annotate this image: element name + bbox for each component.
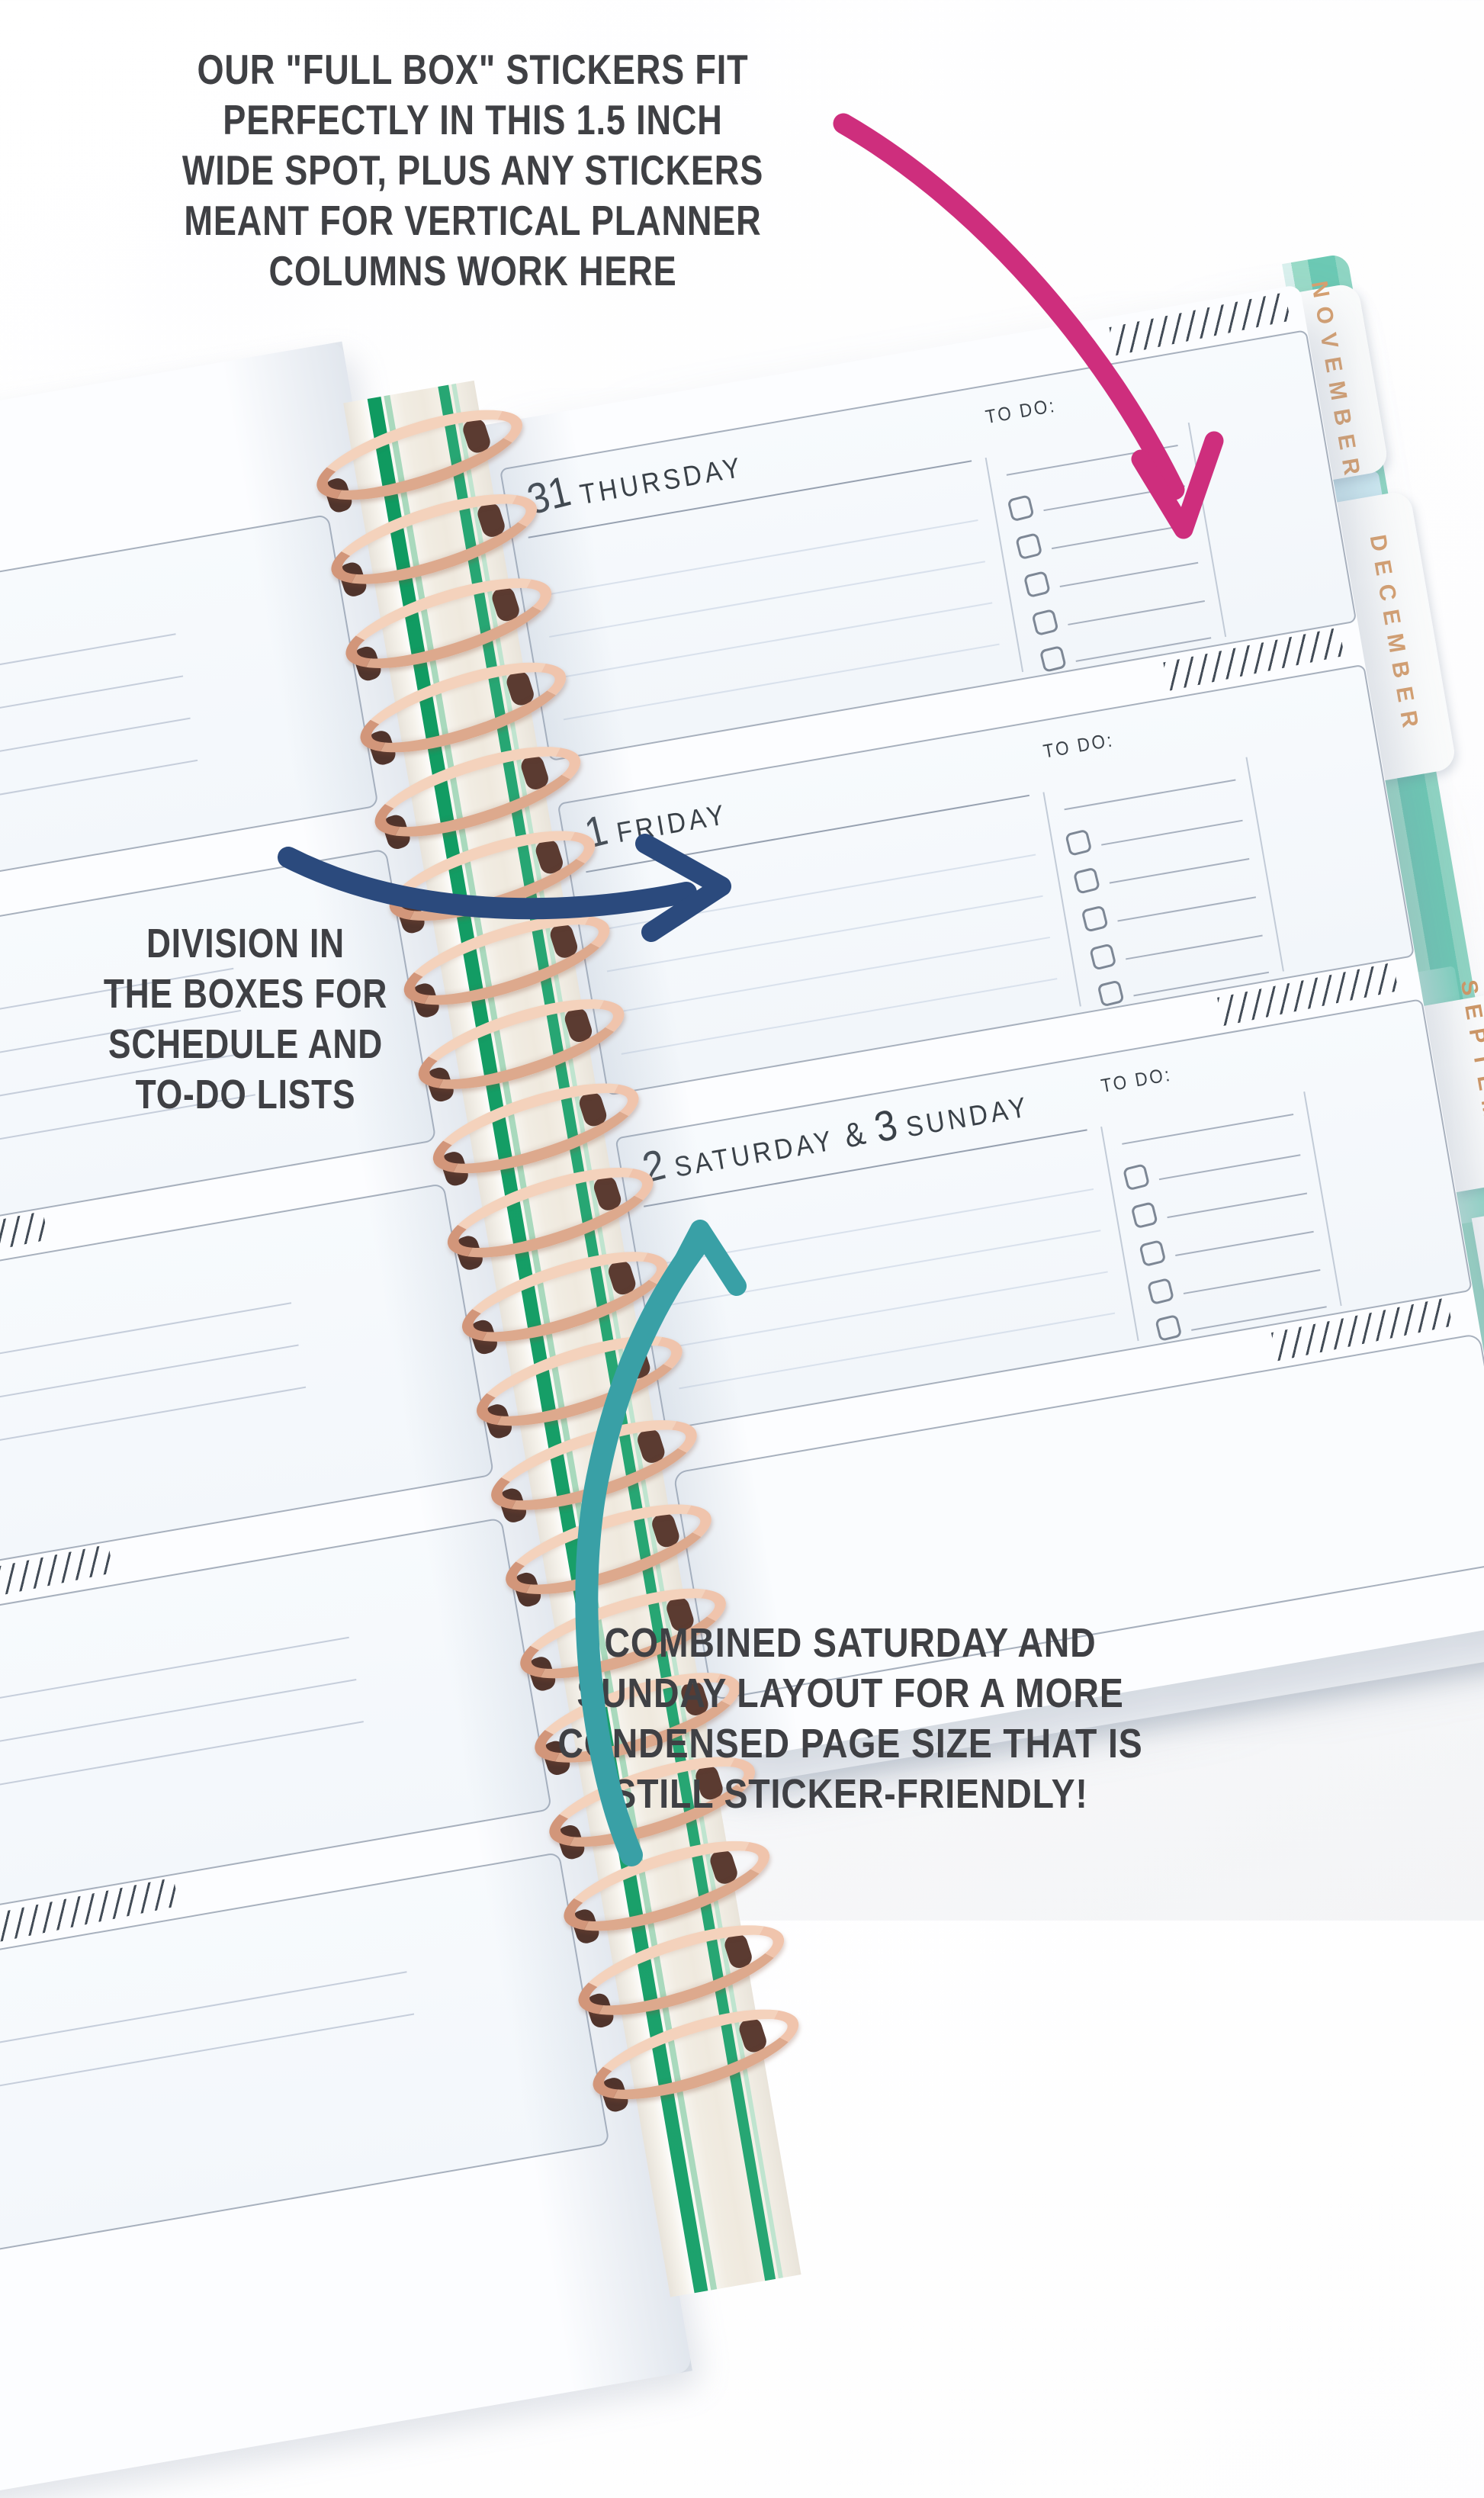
caption-line: PERFECTLY IN THIS 1.5 INCH [101,95,845,145]
todo-label: TO DO: [984,395,1058,429]
todo-checkbox [1073,867,1100,895]
schedule-line [672,1271,1108,1348]
todo-line [1126,934,1263,960]
todo-line [1068,600,1205,625]
todo-label: TO DO: [1100,1064,1174,1098]
caption-line: SCHEDULE AND [27,1020,464,1070]
schedule-todo-divider [1042,792,1081,1006]
todo-label: TO DO: [1042,729,1116,763]
caption-line: WIDE SPOT, PLUS ANY STICKERS [101,145,845,195]
schedule-line [657,1188,1094,1265]
todo-line [1101,820,1243,846]
schedule-line [549,561,985,638]
schedule-line [599,854,1036,931]
top-caption: OUR "FULL BOX" STICKERS FIT PERFECTLY IN… [101,44,845,296]
caption-line: OUR "FULL BOX" STICKERS FIT [101,44,845,95]
caption-line: SUNDAY LAYOUT FOR A MORE [522,1669,1178,1719]
todo-checkbox [1147,1278,1174,1305]
schedule-line [564,644,1000,721]
bottom-caption: COMBINED SATURDAY AND SUNDAY LAYOUT FOR … [522,1619,1178,1820]
caption-line: COLUMNS WORK HERE [101,246,845,296]
todo-checkbox [1031,609,1058,636]
schedule-todo-divider [985,458,1023,672]
todo-line [1052,523,1192,549]
day-name: THURSDAY [577,452,746,511]
todo-checkbox [1139,1239,1166,1267]
todo-checkbox [1097,979,1124,1007]
day-date-2: 3 [869,1099,901,1153]
schedule-line [556,602,992,679]
day-joiner: & [840,1114,869,1156]
todo-checkbox [1131,1201,1158,1229]
caption-line: MEANT FOR VERTICAL PLANNER [101,195,845,246]
todo-sticker-divider [1245,757,1283,971]
caption-line: DIVISION IN [27,919,464,969]
todo-line [1110,858,1250,884]
planner-photo: NOVEMBER DECEMBER SEPTEMBER OCTOBER 31TH… [0,88,1484,2354]
todo-checkbox [1023,571,1051,598]
schedule-line [622,978,1058,1055]
todo-checkbox [1123,1163,1150,1191]
schedule-line [607,895,1043,973]
todo-line [1167,1192,1307,1218]
caption-line: CONDENSED PAGE SIZE THAT IS [522,1719,1178,1770]
todo-line [1007,445,1178,476]
caption-line: STILL STICKER-FRIENDLY! [522,1770,1178,1820]
caption-line: COMBINED SATURDAY AND [522,1619,1178,1669]
todo-sticker-divider [1188,423,1226,637]
todo-checkbox [1065,829,1092,857]
todo-checkbox [1007,494,1034,522]
caption-line: TO-DO LISTS [27,1070,464,1120]
todo-line [1060,562,1199,587]
todo-line [1159,1154,1301,1180]
schedule-todo-divider [1100,1127,1139,1341]
schedule-line [679,1313,1115,1390]
schedule-line [614,937,1050,1014]
left-caption: DIVISION IN THE BOXES FOR SCHEDULE AND T… [27,919,464,1120]
schedule-line [542,519,978,596]
tab-december-label: DECEMBER [1364,533,1425,739]
todo-line [1175,1231,1314,1256]
todo-checkbox [1081,905,1108,932]
todo-line [1122,1114,1293,1145]
todo-checkbox [1089,943,1116,970]
todo-line [1184,1269,1321,1294]
todo-checkbox [1039,645,1067,673]
schedule-line [665,1230,1101,1307]
todo-checkbox [1015,532,1042,560]
tab-september-label: SEPTEMBER [1455,978,1484,1204]
todo-checkbox [1155,1314,1182,1342]
todo-sticker-divider [1303,1091,1341,1306]
todo-line [1043,485,1185,511]
todo-line [1064,779,1235,810]
todo-line [1117,896,1256,921]
caption-line: THE BOXES FOR [27,969,464,1020]
day-name-2: SUNDAY [904,1091,1032,1143]
